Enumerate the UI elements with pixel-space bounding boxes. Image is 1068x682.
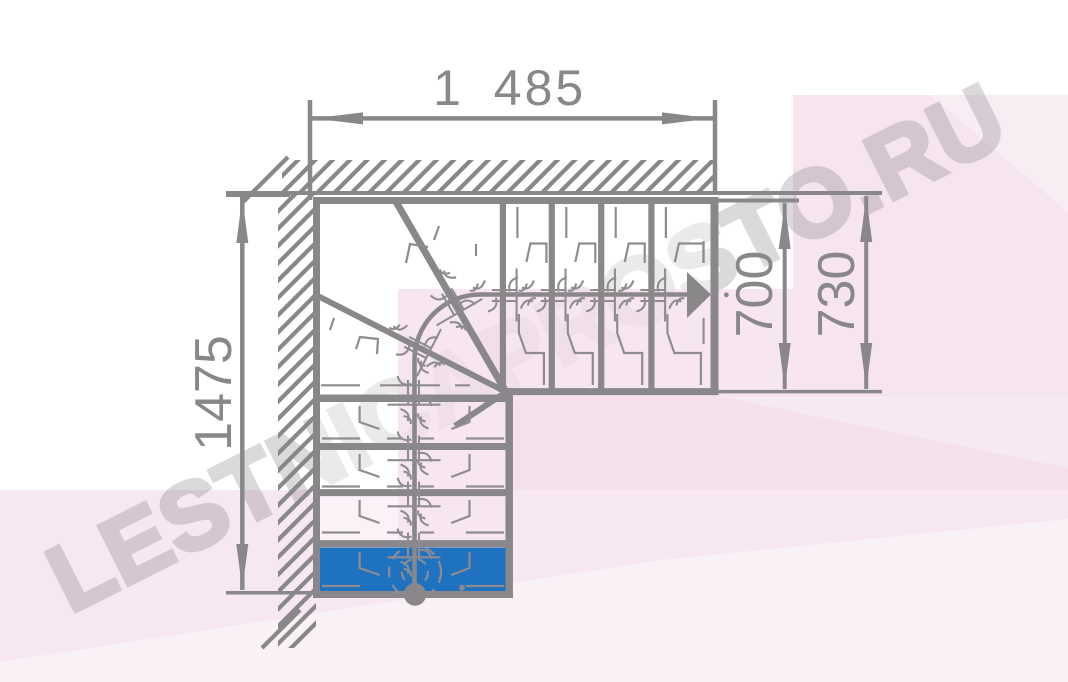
svg-text:1475: 1475 — [185, 335, 243, 451]
svg-text:700: 700 — [726, 251, 784, 338]
svg-text:485: 485 — [494, 60, 586, 116]
svg-text:1: 1 — [433, 60, 461, 116]
svg-text:730: 730 — [808, 251, 866, 338]
